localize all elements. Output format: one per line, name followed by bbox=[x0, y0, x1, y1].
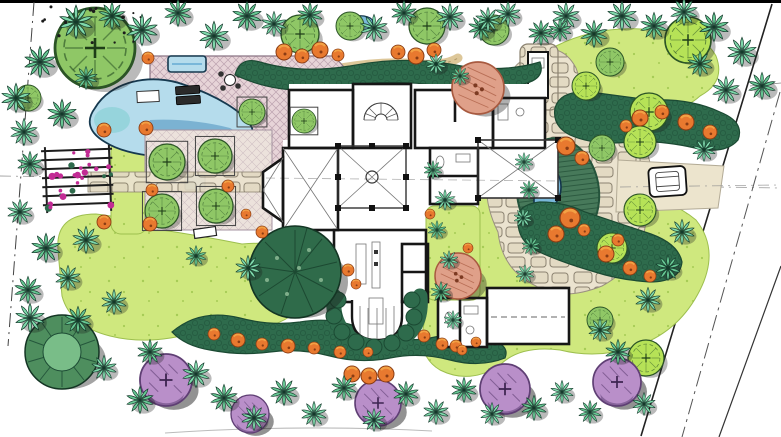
sketch-dot bbox=[121, 15, 125, 19]
sketch-dot bbox=[94, 7, 97, 10]
orange-shrub bbox=[142, 52, 154, 64]
orange-shrub bbox=[557, 137, 575, 155]
orange-shrub bbox=[139, 121, 153, 135]
orange-shrub bbox=[391, 45, 405, 59]
car bbox=[648, 166, 687, 198]
orange-shrub bbox=[332, 49, 344, 61]
orange-shrub bbox=[97, 215, 111, 229]
orange-shrub bbox=[623, 261, 637, 275]
cooktop bbox=[374, 262, 378, 266]
sketch-dot bbox=[57, 34, 60, 37]
orange-shrub bbox=[427, 43, 441, 57]
orange-shrub bbox=[231, 333, 245, 347]
orange-shrub bbox=[408, 48, 424, 64]
orange-shrub bbox=[598, 246, 614, 262]
orange-shrub bbox=[703, 125, 717, 139]
sketch-dot bbox=[64, 21, 67, 24]
orange-shrub bbox=[457, 345, 467, 355]
orange-shrub bbox=[222, 180, 234, 192]
orange-shrub bbox=[418, 330, 430, 342]
orange-shrub bbox=[281, 339, 295, 353]
orange-shrub bbox=[241, 209, 251, 219]
orange-shrub bbox=[344, 366, 360, 382]
sketch-dot bbox=[92, 10, 95, 13]
pool-bench bbox=[137, 90, 160, 102]
orange-shrub bbox=[363, 347, 373, 357]
sketch-dot bbox=[91, 41, 94, 44]
orange-shrub bbox=[256, 338, 268, 350]
sketch-dot bbox=[140, 16, 142, 18]
site-plan-drawing bbox=[0, 0, 781, 437]
orange-shrub bbox=[334, 346, 346, 358]
sink bbox=[374, 250, 378, 254]
orange-shrub bbox=[575, 151, 589, 165]
orange-shrub bbox=[436, 338, 448, 350]
orange-shrub bbox=[463, 243, 473, 253]
orange-shrub bbox=[97, 123, 111, 137]
orange-shrub bbox=[312, 42, 328, 58]
landscape-plan-canvas bbox=[0, 0, 781, 437]
orange-shrub bbox=[342, 264, 354, 276]
sketch-dot bbox=[113, 41, 115, 43]
orange-shrub bbox=[143, 217, 157, 231]
orange-shrub bbox=[560, 208, 580, 228]
orange-shrub bbox=[620, 120, 632, 132]
orange-shrub bbox=[351, 279, 361, 289]
orange-shrub bbox=[378, 366, 394, 382]
orange-shrub bbox=[256, 226, 268, 238]
orange-shrub bbox=[425, 209, 435, 219]
orange-shrub bbox=[146, 184, 158, 196]
orange-shrub bbox=[295, 49, 309, 63]
orange-shrub bbox=[678, 114, 694, 130]
sketch-dot bbox=[89, 8, 93, 12]
orange-shrub bbox=[632, 110, 648, 126]
orange-shrub bbox=[308, 342, 320, 354]
orange-shrub bbox=[644, 270, 656, 282]
orange-shrub bbox=[655, 105, 669, 119]
orange-shrub bbox=[612, 234, 624, 246]
sketch-dot bbox=[123, 31, 126, 34]
sketch-dot bbox=[50, 5, 53, 8]
orange-shrub bbox=[471, 337, 481, 347]
sketch-dot bbox=[41, 20, 44, 23]
orange-shrub bbox=[578, 224, 590, 236]
orange-shrub bbox=[548, 226, 564, 242]
sketch-dot bbox=[132, 12, 134, 14]
top-edge-bar bbox=[0, 0, 781, 3]
sketch-dot bbox=[132, 40, 134, 42]
orange-shrub bbox=[208, 328, 220, 340]
orange-shrub bbox=[361, 368, 377, 384]
orange-shrub bbox=[276, 44, 292, 60]
